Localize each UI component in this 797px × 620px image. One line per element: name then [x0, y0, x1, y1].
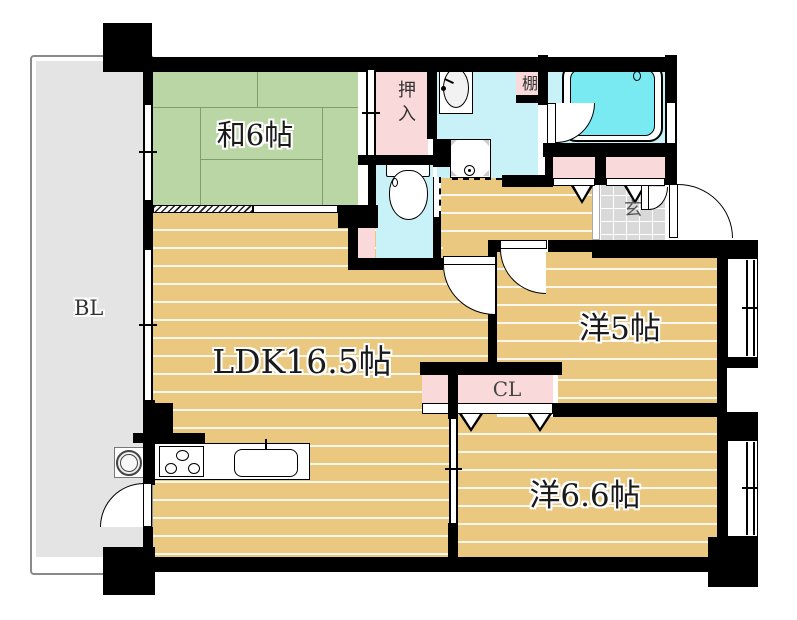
ldk-door-leaf — [443, 256, 496, 265]
sink-faucet-icon — [265, 439, 267, 450]
wall-segment — [592, 240, 678, 258]
sliding-door-break — [362, 112, 380, 114]
wall-segment — [348, 258, 443, 270]
wall-segment — [717, 258, 727, 360]
wall-segment — [727, 412, 758, 440]
room-label-western66: 洋6.6帖 — [505, 470, 665, 515]
shoe-cabinet — [553, 157, 595, 178]
cabinet-front — [553, 178, 595, 186]
closet-label-cl: CL — [483, 377, 531, 401]
wall-segment — [348, 228, 358, 258]
wall-segment — [516, 95, 545, 103]
tatami-line — [153, 107, 358, 108]
wall-segment — [150, 57, 677, 72]
room-floor-western5 — [558, 363, 717, 403]
stove-burner — [165, 463, 177, 474]
pillar — [708, 537, 758, 587]
entrance-label: 玄 — [621, 195, 645, 221]
window-mullion — [742, 307, 758, 309]
stove-burner — [176, 450, 189, 461]
folding-door-icon — [571, 186, 593, 204]
wall-segment — [545, 157, 553, 187]
wall-segment — [595, 155, 606, 185]
pipe-space — [358, 228, 375, 258]
bathroom-window — [665, 103, 677, 143]
wall-segment — [427, 57, 437, 139]
room-label-western5: 洋5帖 — [550, 303, 690, 348]
wall-segment — [448, 523, 458, 559]
folding-door-icon — [528, 414, 552, 432]
wall-segment — [678, 240, 758, 258]
bathtub-drain-icon — [633, 71, 641, 81]
room-label-japanese: 和6帖 — [185, 112, 325, 154]
bathroom-door-leaf — [547, 103, 556, 144]
entrance-door-arc — [678, 184, 733, 238]
wall-segment — [420, 362, 562, 375]
balcony-label: BL — [74, 296, 103, 320]
shelf-label: 棚 — [518, 70, 542, 94]
western5-door-leaf — [500, 240, 547, 249]
entrance-step — [592, 182, 600, 240]
tatami-line — [257, 70, 258, 108]
oshiire-label: 押入 — [392, 80, 418, 128]
entrance-door-leaf — [669, 184, 678, 238]
wall-segment — [717, 440, 727, 537]
wall-segment — [143, 200, 153, 252]
sliding-fusuma-doors — [253, 205, 338, 213]
tatami-edge-hatch — [153, 205, 253, 213]
cabinet-front — [606, 178, 665, 186]
washroom-threshold-dashed — [452, 178, 502, 180]
cl-front — [422, 403, 553, 414]
washbasin-bowl — [443, 68, 469, 108]
kitchen-sink-icon — [234, 449, 298, 477]
wall-segment — [150, 557, 725, 572]
pillar — [103, 547, 155, 595]
balcony-door-leaf — [143, 483, 152, 527]
wall-segment — [717, 360, 727, 440]
wall-segment — [358, 155, 433, 165]
floor-plan: BL — [0, 0, 797, 620]
tatami-line — [200, 159, 322, 160]
washbasin-faucet-icon — [441, 86, 446, 91]
pillar — [103, 23, 152, 72]
wall-segment — [665, 55, 677, 103]
mini-closet — [422, 375, 448, 403]
wall-segment — [143, 72, 153, 107]
room-label-ldk: LDK16.5帖 — [192, 335, 412, 383]
shoe-cabinet — [606, 157, 665, 178]
window-mullion — [742, 487, 758, 489]
wall-segment — [665, 143, 677, 185]
wall-segment — [433, 217, 441, 262]
toilet-flush-icon — [392, 178, 398, 187]
wall-segment — [553, 403, 727, 417]
wall-segment — [338, 205, 378, 228]
sliding-partition — [449, 419, 458, 523]
wall-segment — [502, 175, 545, 187]
folding-door-icon — [459, 414, 483, 432]
pan-drain-dot — [468, 169, 471, 172]
wall-segment — [543, 143, 677, 157]
window-mullion — [139, 151, 157, 153]
wall-segment — [448, 403, 458, 419]
wall-segment — [448, 375, 458, 403]
window-mullion — [139, 324, 157, 326]
cabinet-door-arc — [649, 187, 668, 210]
stove-burner — [188, 463, 200, 474]
wall-segment — [133, 433, 205, 443]
wall-segment — [548, 240, 592, 252]
toilet-sliding-door — [433, 177, 441, 217]
water-heater-ring-inner — [120, 454, 138, 472]
sliding-door-break — [445, 468, 462, 470]
wall-segment — [433, 139, 450, 167]
wall-segment — [145, 403, 173, 435]
